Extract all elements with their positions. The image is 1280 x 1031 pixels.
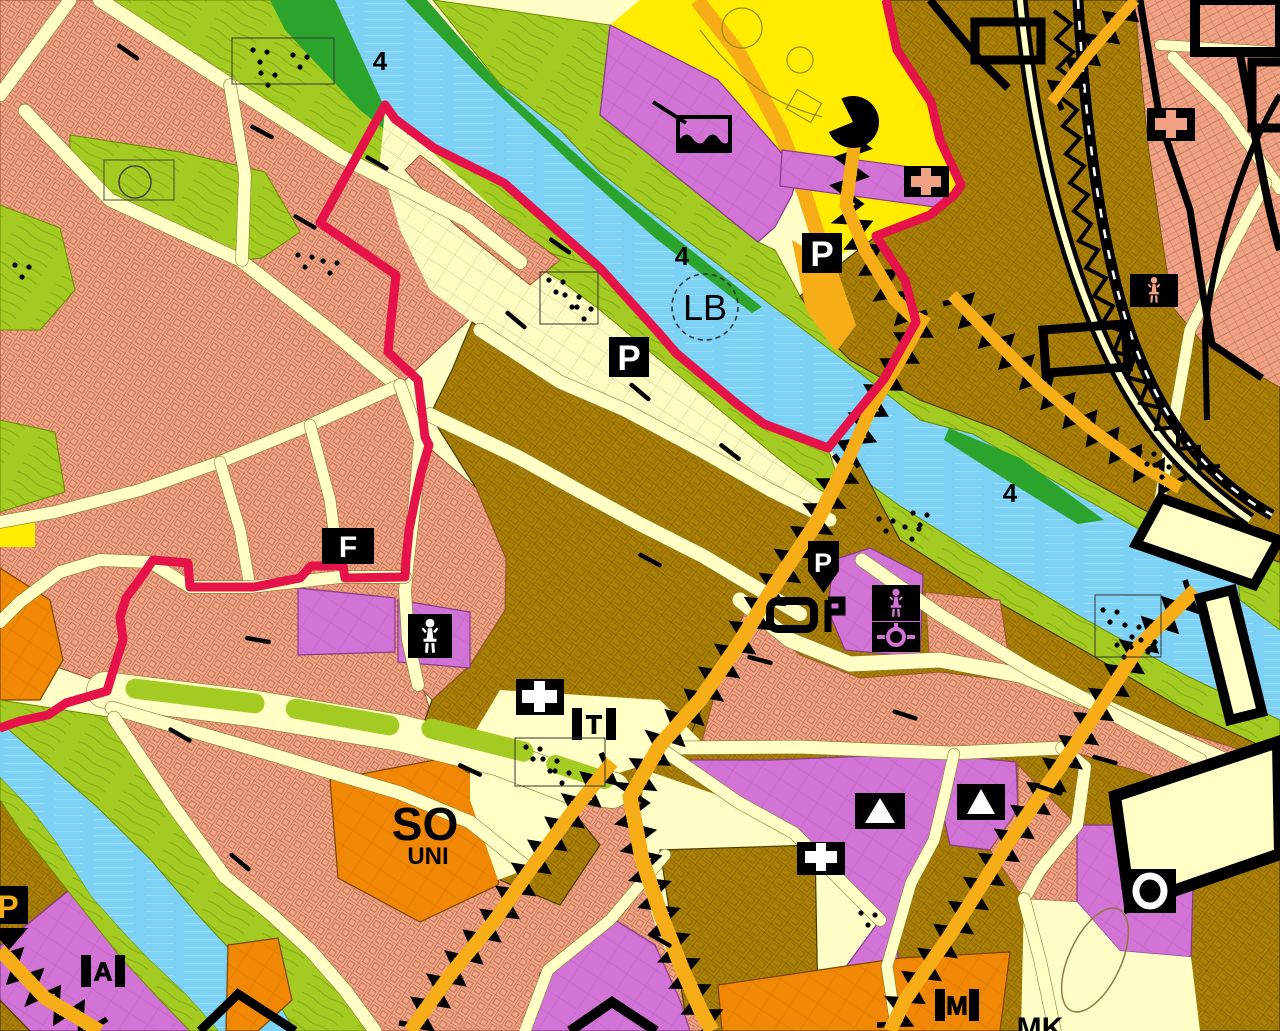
svg-text:A: A xyxy=(94,956,113,986)
svg-text:MK: MK xyxy=(1017,1012,1064,1031)
svg-text:P: P xyxy=(814,548,832,578)
svg-text:4: 4 xyxy=(373,46,388,76)
svg-text:UNI: UNI xyxy=(407,843,448,870)
svg-text:LB: LB xyxy=(683,287,727,328)
svg-text:P: P xyxy=(810,235,833,274)
svg-text:4: 4 xyxy=(1003,478,1018,508)
svg-text:P: P xyxy=(617,339,640,378)
svg-text:T: T xyxy=(586,709,602,739)
svg-text:P: P xyxy=(0,889,19,925)
svg-text:M: M xyxy=(946,990,968,1020)
svg-text:4: 4 xyxy=(675,241,690,271)
svg-text:F: F xyxy=(339,531,357,564)
